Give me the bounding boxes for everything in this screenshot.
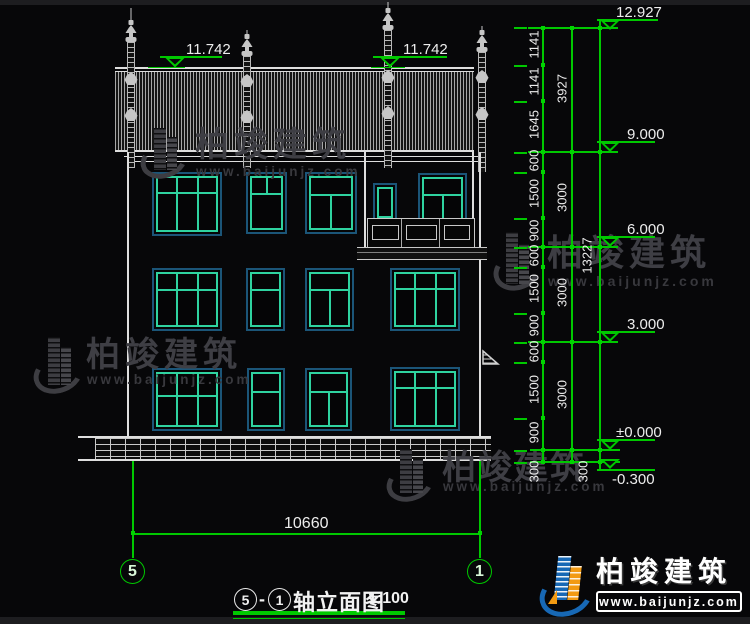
title-axis-end: 1: [268, 588, 291, 611]
roof-marker-right-level: [371, 67, 405, 69]
watermark-url: www.baijunjz.com: [548, 274, 717, 288]
watermark-brand: 柏竣建筑: [86, 338, 242, 372]
axis-bubble-1: 1: [467, 559, 492, 584]
balcony-left-wall: [364, 152, 366, 250]
watermark-logo-icon: [386, 449, 436, 497]
dim-chain-line-inner: [542, 27, 544, 463]
brand-logo-text: 柏竣建筑: [596, 558, 732, 586]
elev-label: ±0.000: [616, 425, 662, 440]
watermark-url: www.baijunjz.com: [196, 165, 361, 179]
dim-label: 300: [577, 450, 590, 494]
elev-triangle: [600, 459, 620, 469]
window: [305, 268, 354, 331]
balcony-door: [373, 183, 397, 222]
dim-label: 900: [528, 411, 541, 455]
window: [247, 368, 285, 431]
roof-elevation-right: 11.742: [403, 42, 448, 57]
window: [246, 268, 285, 331]
elev-triangle: [600, 20, 620, 30]
balcony-window: [418, 173, 467, 224]
axis-line-right: [479, 461, 481, 558]
watermark-logo-icon: [140, 128, 190, 174]
dim-label: 1141: [528, 60, 541, 104]
width-dim-tick: [478, 531, 482, 535]
dim-label: 1500: [528, 368, 541, 412]
elev-label: 12.927: [616, 5, 662, 20]
elev-label: 3.000: [627, 317, 665, 332]
dim-label: 3000: [556, 373, 569, 417]
side-awning: [482, 349, 500, 367]
elev-label: 6.000: [627, 222, 665, 237]
level-line: [528, 341, 618, 343]
elev-label: -0.300: [612, 472, 655, 487]
balcony-slab: [357, 247, 487, 260]
dim-ticks-outer: [598, 26, 602, 30]
window: [305, 368, 352, 431]
window: [152, 172, 222, 236]
dim-extension-dashes: [514, 27, 527, 29]
finial-pillar-1: [124, 8, 138, 168]
width-dim-line: [133, 533, 480, 535]
dim-ticks-inner: [541, 26, 545, 30]
axis-line-left: [132, 461, 134, 558]
width-dim-tick: [131, 531, 135, 535]
cad-elevation-drawing: 11.742 11.742 1141 1141 1645 600 1500 90…: [0, 0, 750, 624]
watermark-logo-icon: [33, 337, 83, 389]
left-wall: [127, 152, 129, 437]
roof-ridge-line2: [115, 71, 474, 72]
window: [390, 268, 460, 331]
window: [152, 268, 222, 331]
level-line: [530, 449, 620, 451]
axis-bubble-5: 5: [120, 559, 145, 584]
right-wall: [479, 152, 481, 437]
dim-label: 3927: [556, 67, 569, 111]
level-line: [528, 246, 618, 248]
roof-elevation-left: 11.742: [186, 42, 231, 57]
dim-label: 3000: [556, 176, 569, 220]
dim-chain-line-mid: [571, 27, 573, 463]
width-dim-label: 10660: [284, 516, 329, 532]
drawing-scale: 1:100: [368, 590, 409, 608]
level-line: [528, 151, 618, 153]
watermark-brand: 柏竣建筑: [195, 128, 351, 162]
dim-label: 300: [528, 450, 541, 494]
elev-label: 9.000: [627, 127, 665, 142]
roof-marker-left-level: [148, 67, 185, 69]
finial-pillar-4: [475, 26, 489, 172]
window: [390, 367, 460, 431]
balcony-railing: [367, 218, 475, 248]
brand-logo-url: www.baijunjz.com: [596, 591, 742, 612]
title-underline-thin: [233, 618, 405, 620]
dim-ticks-mid: [570, 26, 574, 30]
title-separator: -: [259, 589, 265, 610]
dim-label: 3000: [556, 271, 569, 315]
brand-logo-icon: [538, 554, 592, 612]
title-axis-start: 5: [234, 588, 257, 611]
watermark-url: www.baijunjz.com: [87, 373, 252, 387]
dim-total-label: 13227: [581, 234, 594, 278]
dim-chain-line-outer: [599, 19, 601, 471]
window: [246, 172, 287, 234]
finial-pillar-3: [381, 2, 395, 168]
window: [305, 172, 357, 234]
